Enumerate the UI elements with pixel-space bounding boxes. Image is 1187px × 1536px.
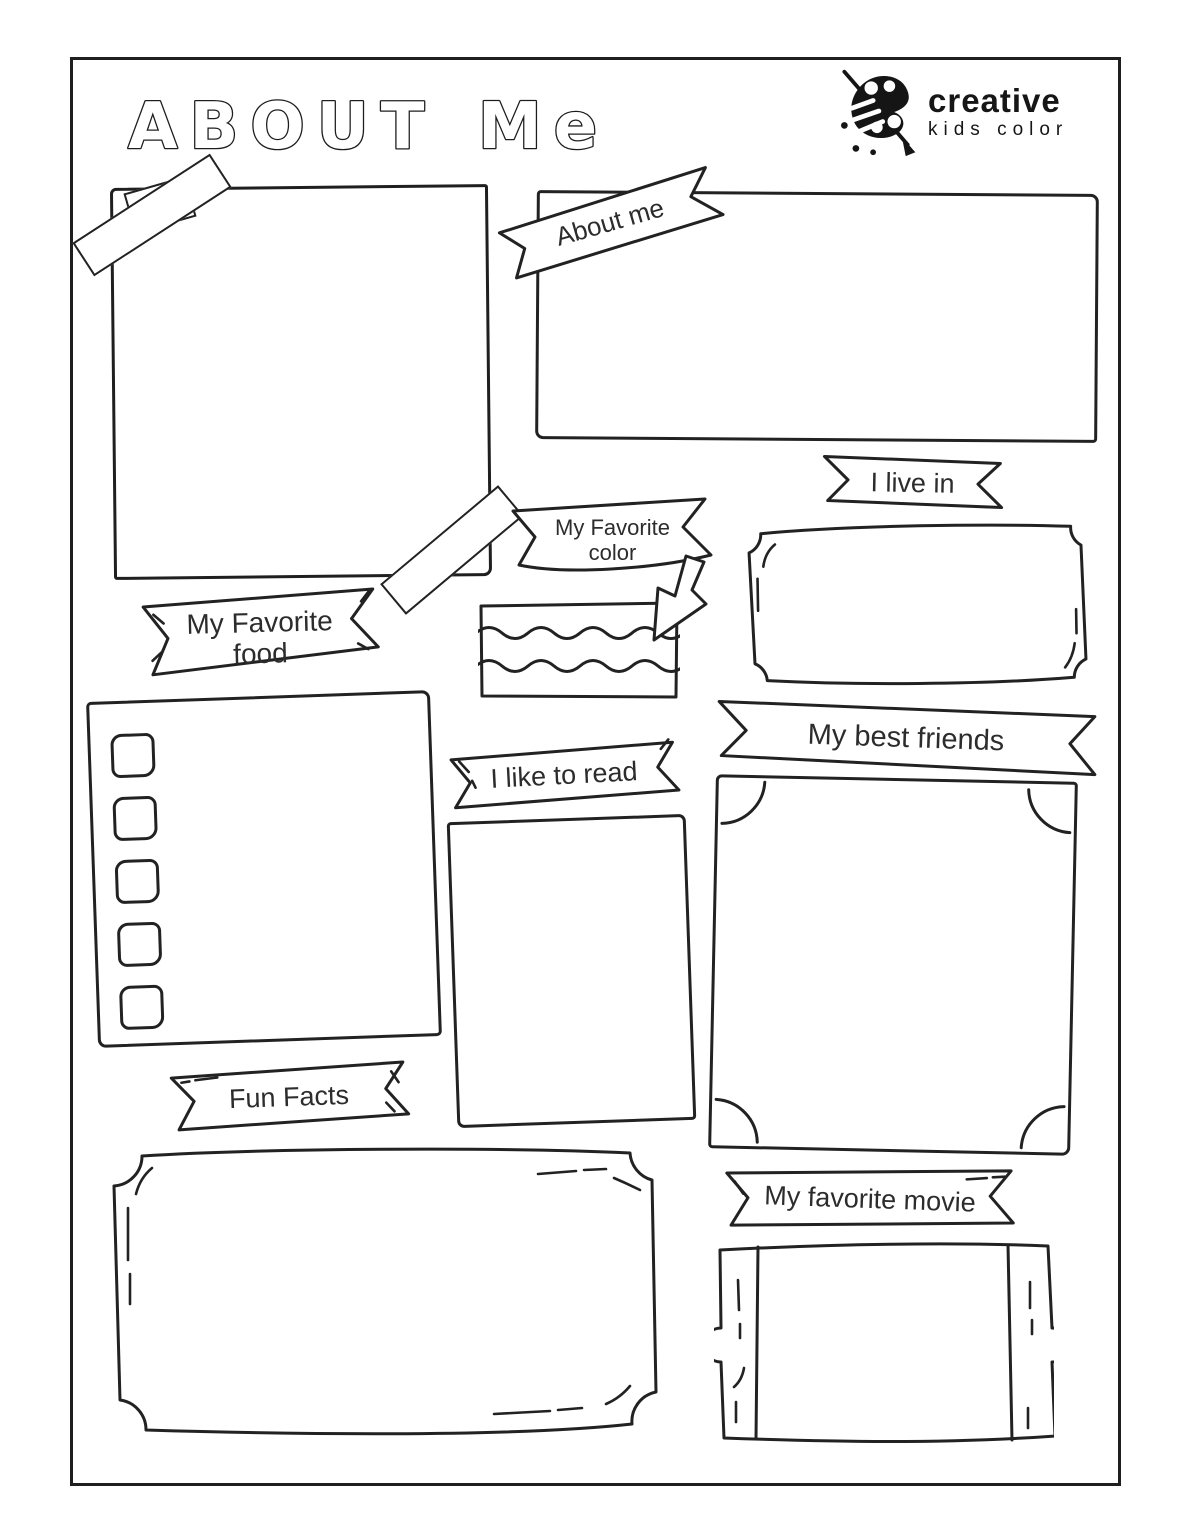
live-in-plaque[interactable] <box>741 517 1092 693</box>
favorite-food-banner: My Favorite food <box>135 585 386 691</box>
checkbox-1[interactable] <box>110 733 156 779</box>
favorite-movie-banner: My favorite movie <box>719 1157 1021 1242</box>
plaque-shape <box>741 517 1092 693</box>
best-friends-label: My best friends <box>807 718 1005 757</box>
checkbox-2[interactable] <box>112 796 158 842</box>
fun-facts-banner: Fun Facts <box>163 1058 415 1137</box>
title-word-about: ABOUT <box>128 90 436 164</box>
brand-name: creative <box>928 84 1068 117</box>
best-friends-frame[interactable] <box>708 774 1078 1155</box>
svg-text:ABOUT Me: ABOUT Me <box>128 90 609 164</box>
like-to-read-banner: I like to read <box>446 736 681 814</box>
paint-palette-icon <box>832 66 920 158</box>
plaque-shape <box>106 1142 664 1447</box>
live-in-banner: I live in <box>819 450 1005 515</box>
checkbox-4[interactable] <box>117 922 163 968</box>
brand-logo: creative kids color <box>832 66 1068 158</box>
brand-tagline: kids color <box>928 120 1068 139</box>
title-word-me: Me <box>478 90 609 164</box>
best-friends-banner: My best friends <box>711 693 1101 782</box>
photo-corner-icons <box>711 777 1075 1152</box>
ticket-shape <box>714 1240 1054 1445</box>
food-notebook[interactable] <box>86 690 442 1048</box>
live-in-label: I live in <box>870 467 955 499</box>
photo-frame[interactable] <box>110 184 492 580</box>
checkbox-5[interactable] <box>119 985 165 1031</box>
fun-facts-plaque[interactable] <box>106 1142 664 1447</box>
fun-facts-label: Fun Facts <box>228 1080 349 1114</box>
favorite-food-label: My Favorite food <box>186 605 334 672</box>
checkbox-3[interactable] <box>115 859 161 905</box>
worksheet-page: ABOUT Me creative kids color <box>0 0 1187 1536</box>
down-left-arrow-icon <box>648 554 710 642</box>
movie-ticket[interactable] <box>714 1240 1054 1445</box>
read-box[interactable] <box>447 814 697 1128</box>
